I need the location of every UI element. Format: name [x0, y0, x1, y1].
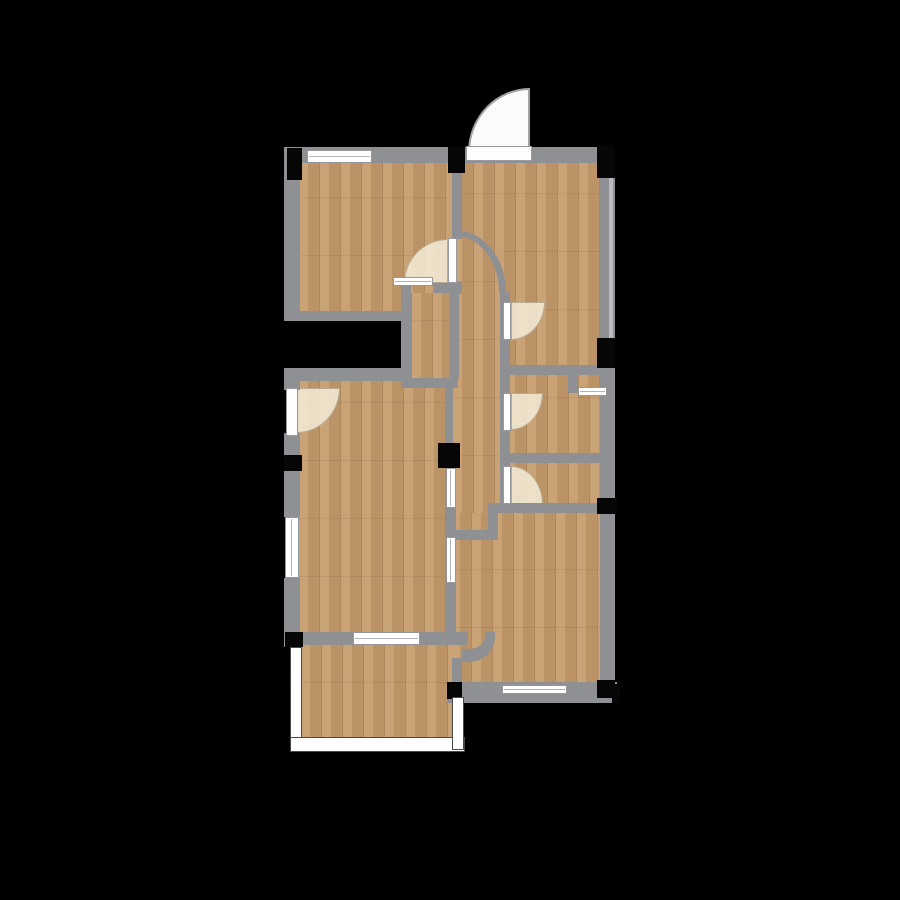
floor-closet-pocket[interactable]: [411, 293, 450, 378]
wall-niche-left: [568, 375, 578, 393]
wall-living-bottom-b: [420, 632, 468, 645]
wall-living-west-a: [284, 368, 300, 390]
wall-balcony-right: [452, 658, 462, 685]
window-living-west[interactable]: [285, 517, 299, 578]
floor-room-top-left[interactable]: [298, 163, 452, 313]
balcony-railing-south: [290, 737, 465, 752]
column-right-mid: [597, 338, 615, 368]
window-niche[interactable]: [578, 387, 607, 396]
column-right-lower: [597, 498, 617, 514]
floorplan-canvas: [0, 0, 900, 900]
floor-balcony[interactable]: [300, 645, 453, 740]
window-interior-a[interactable]: [446, 468, 456, 508]
window-living-south[interactable]: [353, 632, 420, 645]
wall-bath-top: [510, 365, 607, 375]
wall-pocket-right: [450, 293, 459, 378]
window-interior-b[interactable]: [446, 537, 456, 583]
wall-hallway-west: [445, 378, 453, 444]
wall-pocket-top-stub: [433, 283, 459, 293]
column-top-left: [287, 148, 302, 180]
door-leaf-living-west[interactable]: [286, 388, 298, 436]
wall-westline-seg2: [446, 583, 456, 632]
entry-door-leaf[interactable]: [466, 146, 532, 161]
window-bedroom-south[interactable]: [502, 685, 567, 694]
column-top-mid: [448, 147, 465, 173]
entry-door-swing[interactable]: [468, 88, 530, 152]
column-center: [438, 443, 460, 468]
wall-living-bottom-a: [298, 632, 353, 645]
door-leaf-hall-upper[interactable]: [503, 302, 511, 340]
door-leaf-bath-lower[interactable]: [503, 466, 511, 504]
wall-right-window-strip: [609, 178, 613, 338]
wall-bath-divider: [503, 453, 615, 463]
door-leaf-bath-upper[interactable]: [503, 393, 511, 431]
window-pocket[interactable]: [393, 277, 433, 286]
wall-jog-horizontal: [452, 530, 498, 540]
balcony-railing-east: [452, 697, 464, 750]
balcony-railing-west: [290, 647, 302, 745]
wall-living-top: [284, 368, 411, 381]
column-bedroom-se-edge: [612, 684, 620, 703]
wall-westline-seg1: [446, 508, 456, 537]
door-leaf-room-top-left[interactable]: [448, 238, 457, 283]
column-left-mid: [284, 455, 302, 471]
column-left-lower: [285, 632, 303, 647]
wall-divider-upper: [452, 163, 462, 239]
window-top[interactable]: [307, 150, 372, 163]
column-top-right: [597, 145, 615, 178]
wall-room-tl-bottom: [284, 311, 410, 321]
wall-living-west-b: [284, 433, 300, 517]
